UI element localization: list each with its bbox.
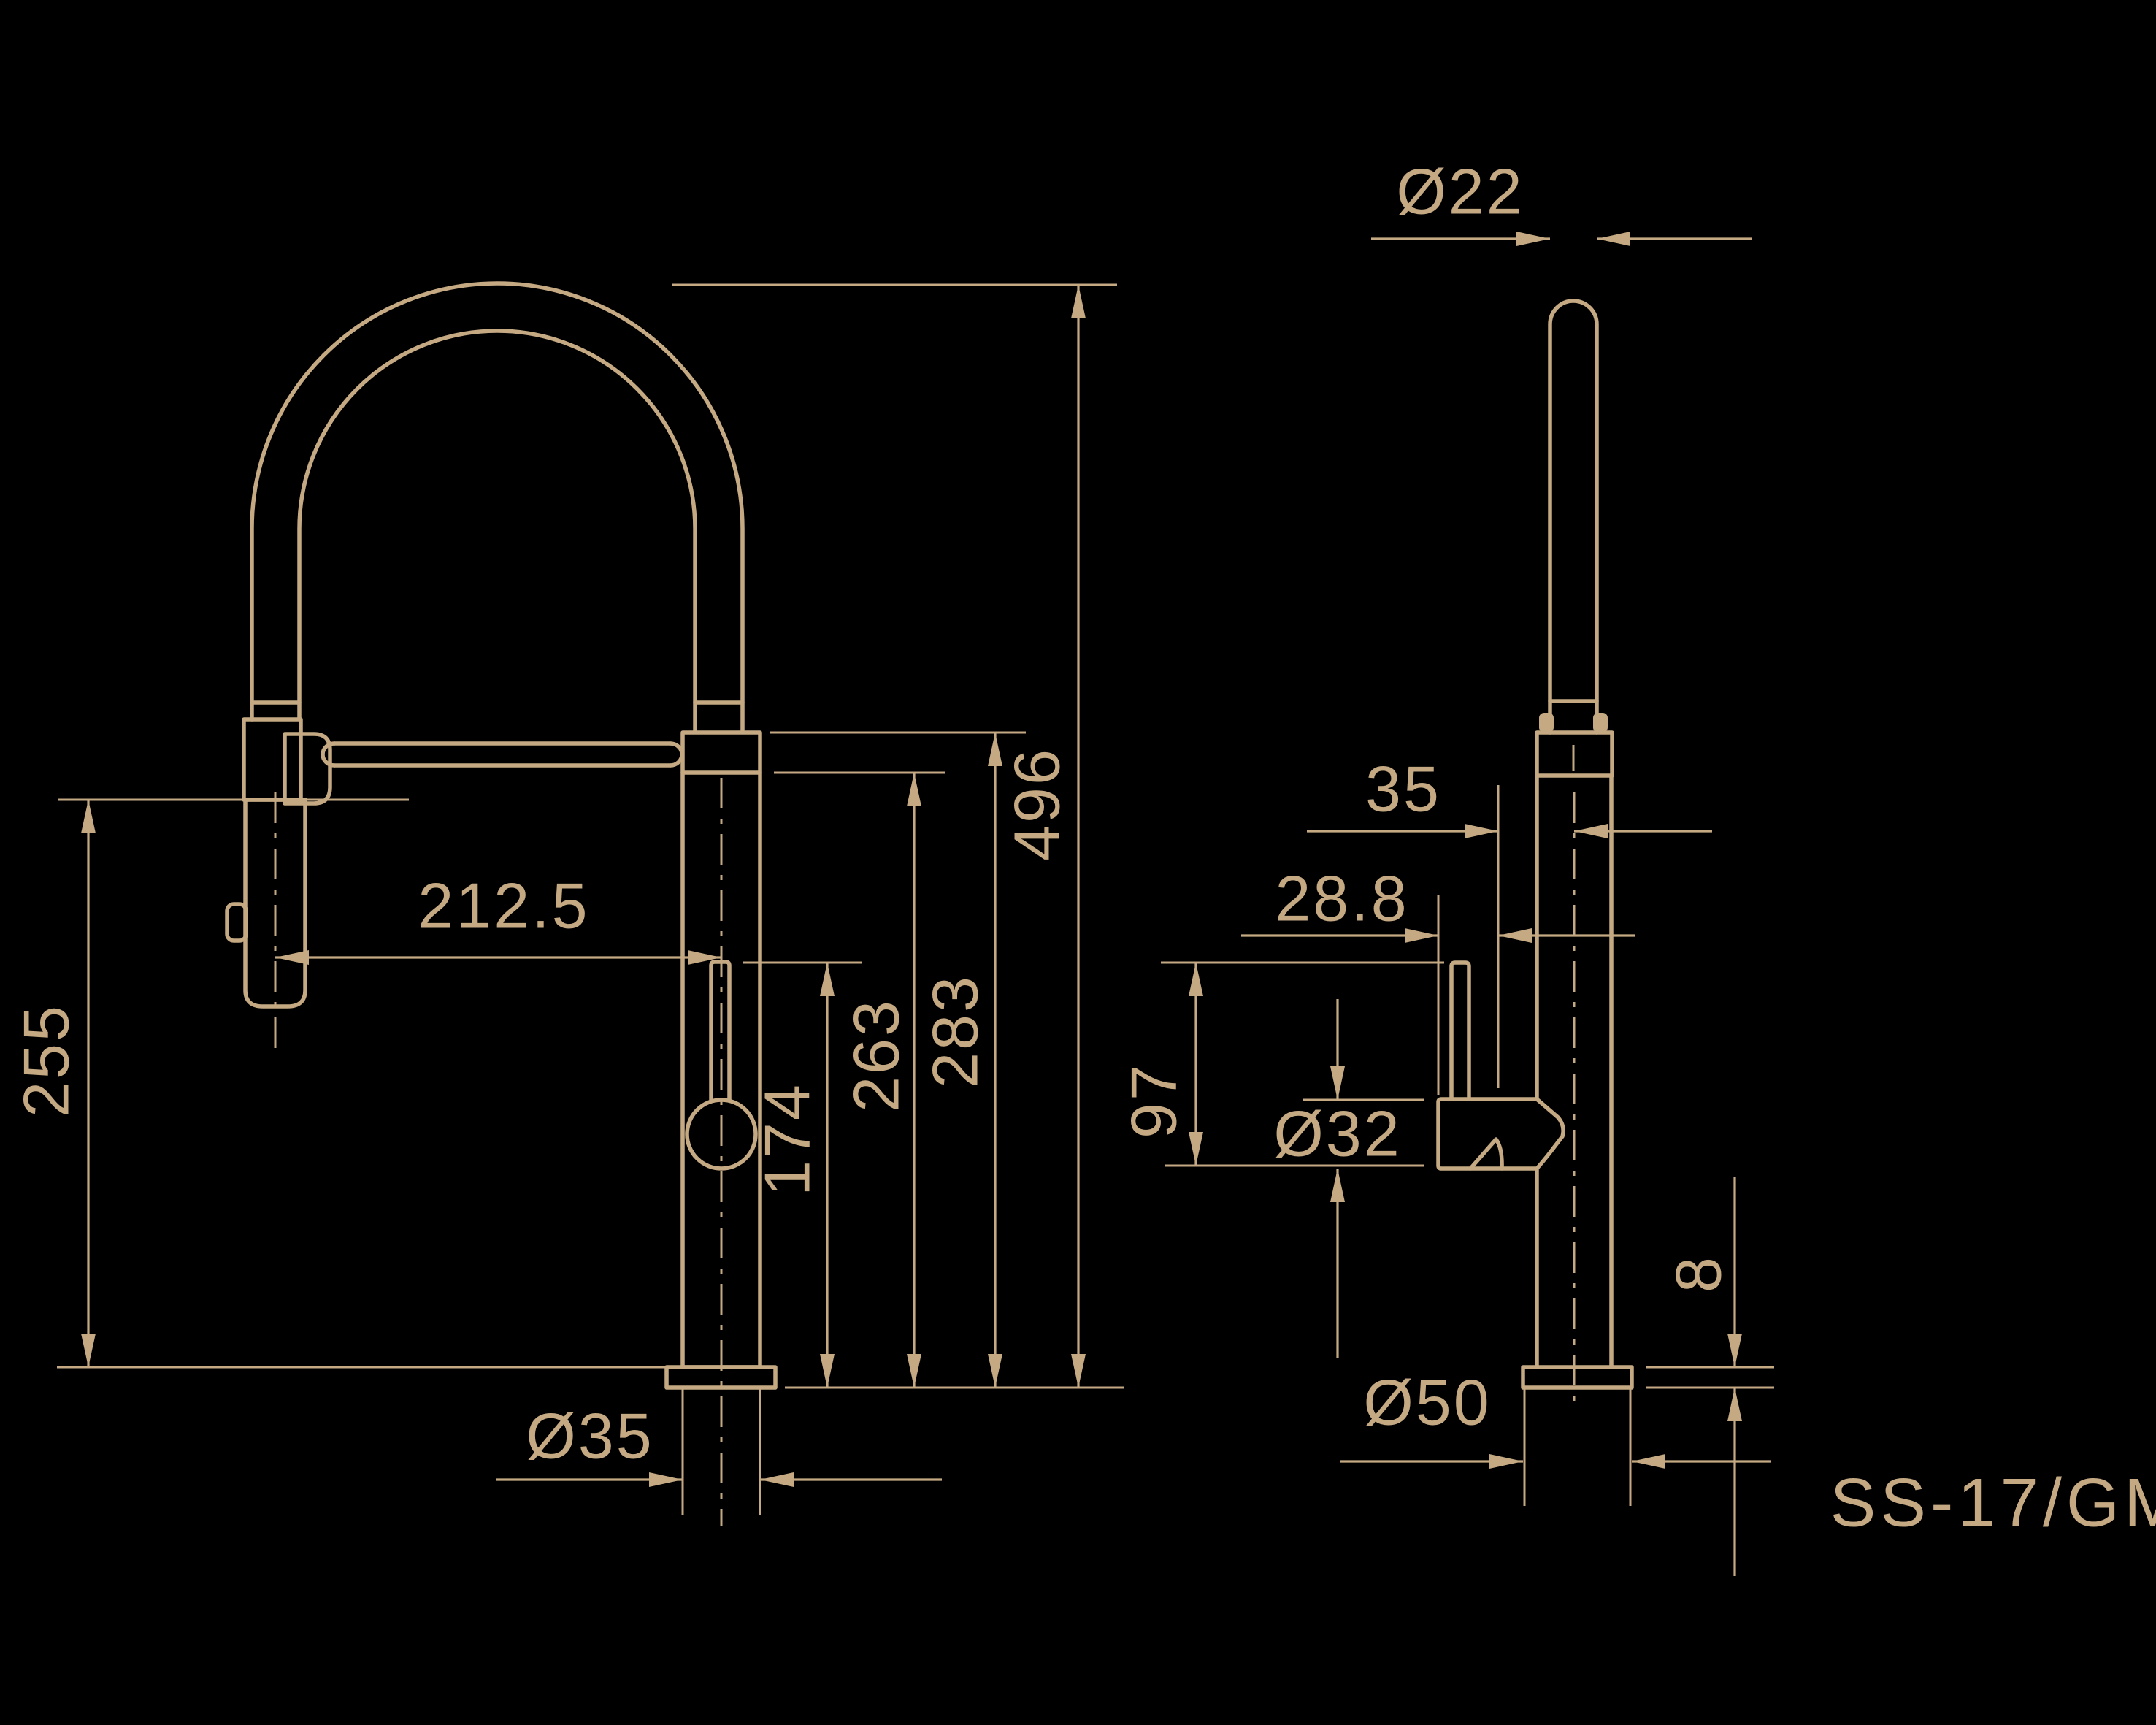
dim-spout-diameter-label: Ø22 xyxy=(1396,156,1524,228)
handle-lever-side xyxy=(1451,963,1469,1099)
base-flange-side xyxy=(1523,1367,1632,1388)
dim-handle-offset-label: 35 xyxy=(1365,753,1441,825)
hose-outer-arc xyxy=(252,283,743,730)
dim-joint-diameter-label: Ø32 xyxy=(1273,1098,1401,1170)
dim-handle-zone-height-label: 97 xyxy=(1118,1063,1190,1139)
ball-joint-seam xyxy=(1470,1139,1502,1169)
dim-overall-height-label: 496 xyxy=(1001,747,1073,861)
dim-body-collar-height-label: 263 xyxy=(840,998,913,1112)
support-bar-right-cap xyxy=(670,743,682,765)
dim-spray-head-drop-label: 255 xyxy=(10,1003,83,1117)
dim-spout-holder-top-height-label: 283 xyxy=(919,974,991,1088)
ball-joint-nose xyxy=(1537,1099,1563,1169)
dim-body-diameter-label: Ø35 xyxy=(526,1400,653,1472)
dim-base-diameter-label: Ø50 xyxy=(1363,1366,1491,1439)
spray-head-collar xyxy=(244,719,301,800)
drawing-stage: 255 212.5 174 263 283 496 Ø35 xyxy=(0,0,2156,1725)
spout-clip-left xyxy=(1539,713,1554,733)
spout-clip-right xyxy=(1593,713,1608,733)
spout-tube-side xyxy=(1550,301,1597,733)
model-code-label: SS-17/GM xyxy=(1830,1464,2156,1541)
spray-head-button xyxy=(227,904,246,941)
hose-inner-arc xyxy=(299,331,695,730)
front-view: 255 212.5 174 263 283 496 Ø35 xyxy=(10,283,1125,1526)
side-view: Ø22 35 28.8 97 Ø32 8 Ø50 xyxy=(1118,156,1775,1577)
dim-flange-thickness-label: 8 xyxy=(1662,1255,1735,1293)
dim-handle-reach-label: 28.8 xyxy=(1275,862,1408,935)
spray-head-holder-lug xyxy=(285,734,330,803)
dim-lever-top-height-label: 174 xyxy=(751,1082,824,1196)
dim-spout-reach-label: 212.5 xyxy=(418,870,589,942)
faucet-technical-drawing: 255 212.5 174 263 283 496 Ø35 xyxy=(0,0,2156,1725)
ball-joint-housing xyxy=(1438,1099,1537,1169)
